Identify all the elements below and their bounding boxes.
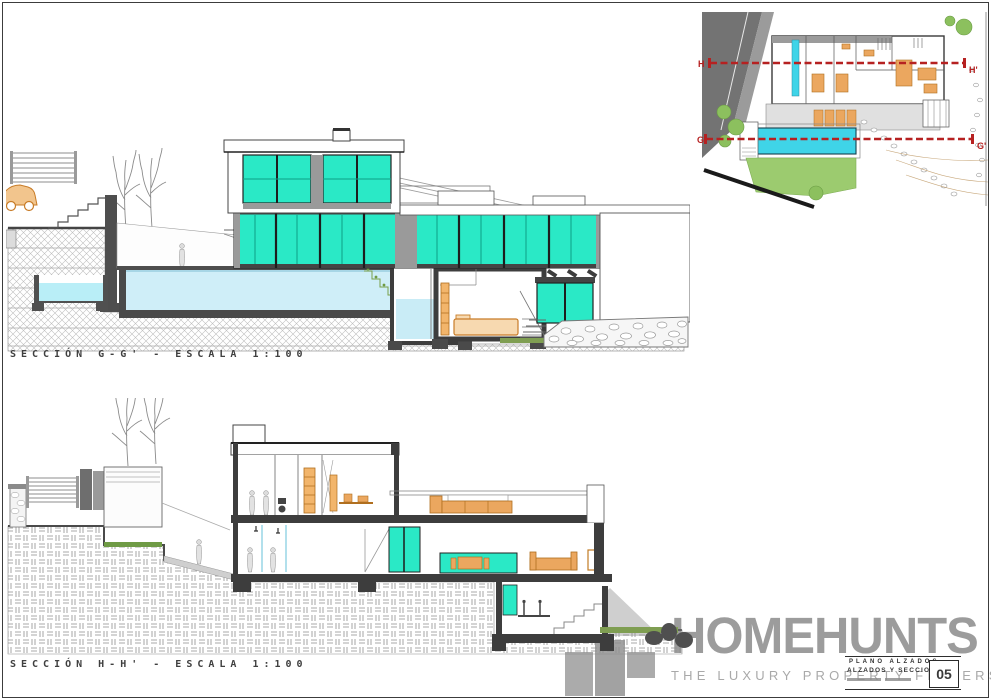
- stone-pillar: [8, 484, 28, 527]
- site-plan: H H' G G': [696, 10, 990, 210]
- title-block-fineprint: [885, 678, 911, 681]
- tree: [136, 148, 166, 228]
- marker-h-prime: H': [969, 65, 978, 75]
- walking-figure: [197, 540, 202, 564]
- section-hh-label: SECCIÓN H-H' - ESCALA 1:100: [10, 659, 308, 670]
- building-footprint: [772, 36, 944, 104]
- homehunts-wordmark: HOMEHUNTS: [671, 610, 978, 661]
- title-block-line1: PLANO ALZADOS: [849, 659, 939, 665]
- section-gg-label: SECCIÓN G-G' - ESCALA 1:100: [10, 349, 308, 360]
- street-fence: [6, 230, 16, 248]
- terrain-line: [162, 503, 230, 530]
- main-floor-glazing: [234, 211, 602, 268]
- sheet-number: 05: [929, 660, 959, 688]
- section-gg-drawing: [6, 103, 690, 355]
- title-block-fineprint: [847, 678, 881, 681]
- pool: [117, 266, 401, 318]
- drawing-sheet: HOMEHUNTS THE LUXURY PROPERTY FINDERS: [0, 0, 991, 699]
- garden-wall: [104, 467, 162, 527]
- title-block: PLANO ALZADOS ALZADOS Y SECCIONES 05: [845, 656, 961, 690]
- car: [6, 185, 37, 211]
- marker-g-prime: G': [977, 141, 986, 151]
- tree: [112, 398, 142, 466]
- gate-panel: [93, 471, 104, 510]
- left-fence: [10, 151, 77, 184]
- upper-floor-volume: [224, 128, 404, 213]
- stone-wall: [544, 317, 688, 347]
- contour-lines: [886, 150, 988, 195]
- tree: [140, 398, 170, 464]
- marker-g: G: [697, 135, 704, 145]
- terrace-deck: [766, 100, 949, 130]
- exterior-stairs: [48, 198, 105, 228]
- slat-fence: [26, 476, 79, 508]
- marker-h: H: [698, 59, 705, 69]
- section-hh-drawing: [6, 398, 696, 658]
- plan-pool: [740, 122, 860, 160]
- terrace-lawn: [104, 542, 162, 547]
- gate-panel: [80, 469, 92, 510]
